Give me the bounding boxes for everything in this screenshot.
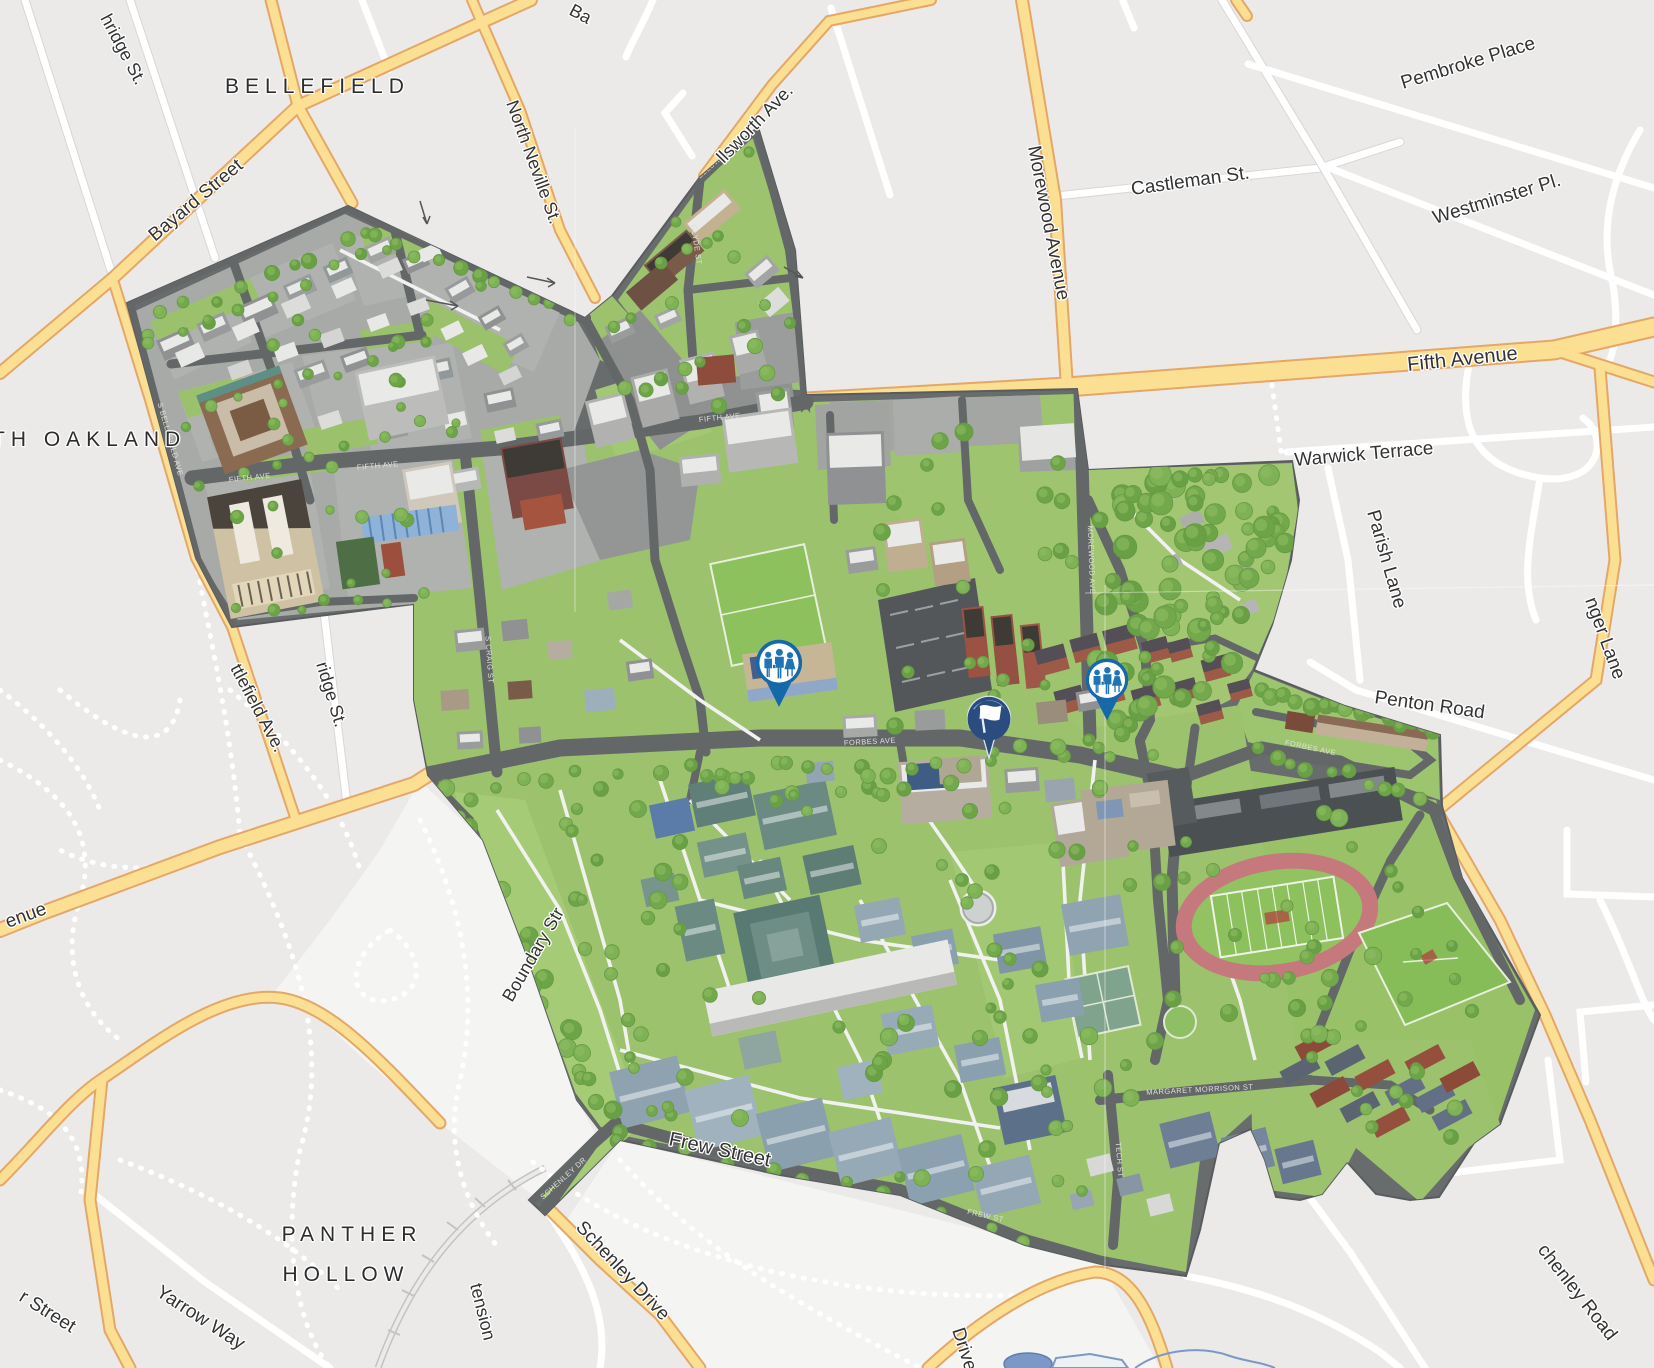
svg-text:TH OAKLAND: TH OAKLAND (0, 428, 186, 451)
svg-text:PANTHER: PANTHER (282, 1223, 423, 1246)
svg-text:BELLEFIELD: BELLEFIELD (225, 75, 410, 98)
svg-text:HOLLOW: HOLLOW (282, 1263, 409, 1286)
